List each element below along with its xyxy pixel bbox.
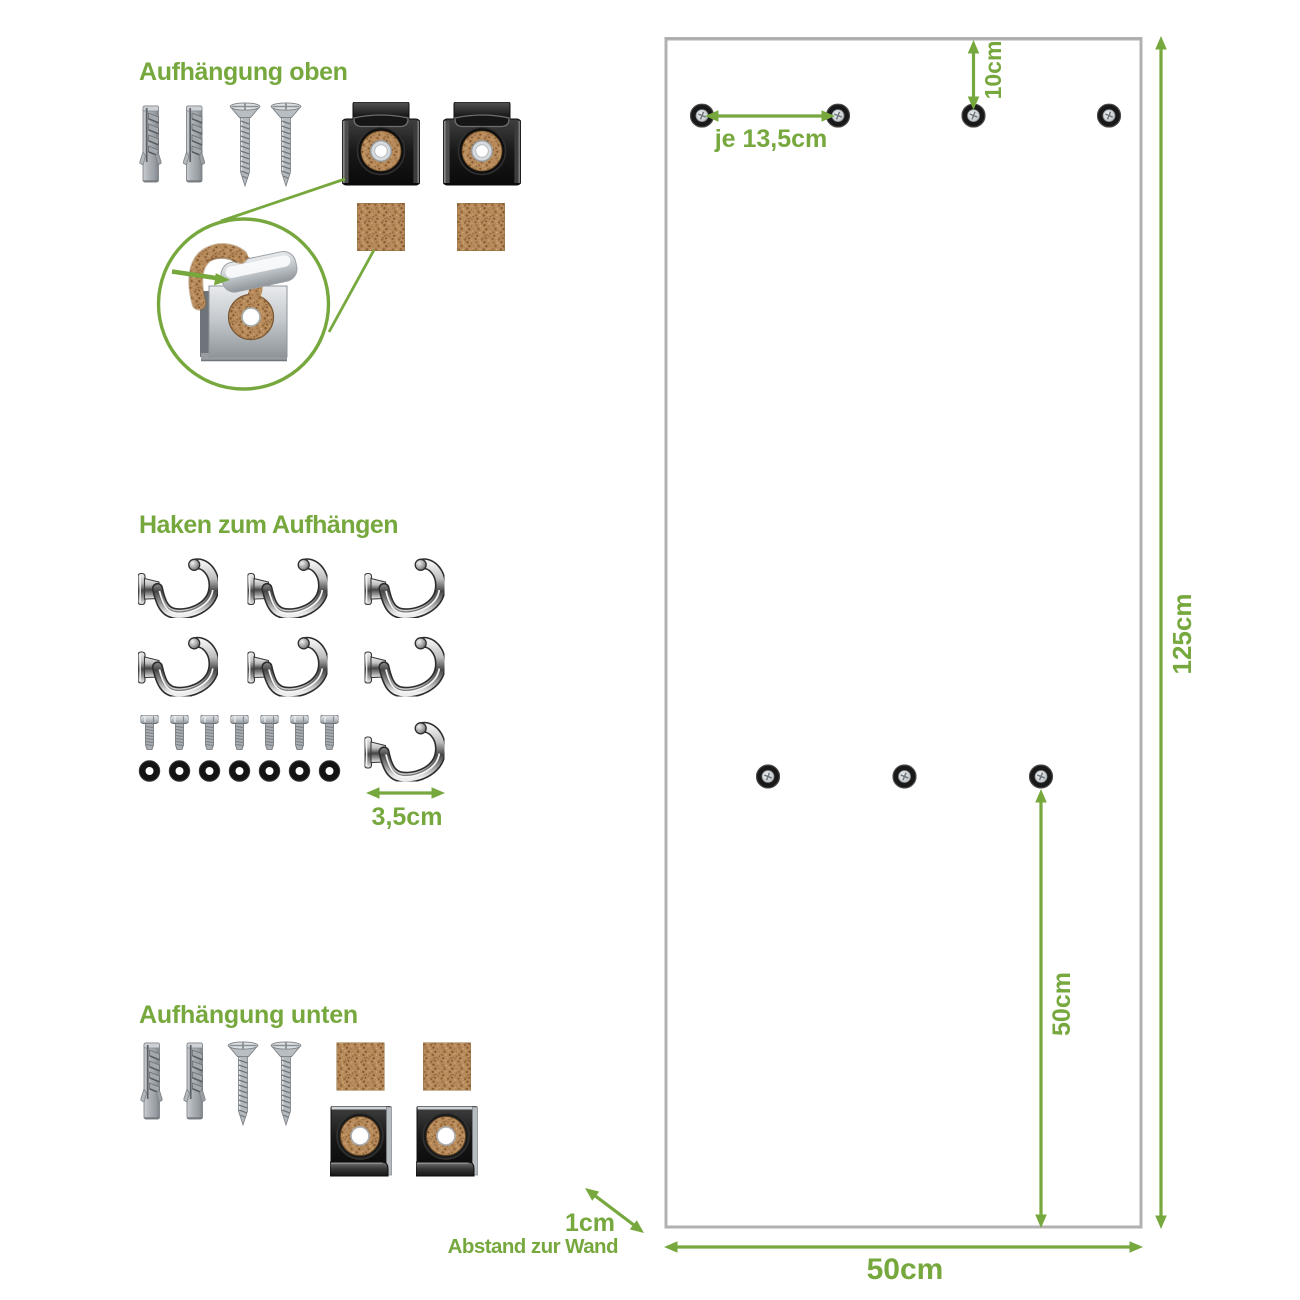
svg-text:3,5cm: 3,5cm: [372, 803, 443, 831]
svg-text:Aufhängung unten: Aufhängung unten: [139, 1001, 358, 1029]
svg-text:je 13,5cm: je 13,5cm: [714, 125, 828, 153]
svg-text:Haken zum Aufhängen: Haken zum Aufhängen: [139, 511, 398, 539]
svg-text:Abstand zur Wand: Abstand zur Wand: [448, 1235, 618, 1258]
svg-text:1cm: 1cm: [565, 1209, 615, 1237]
svg-text:50cm: 50cm: [1048, 972, 1076, 1036]
svg-text:50cm: 50cm: [867, 1253, 944, 1286]
svg-text:10cm: 10cm: [980, 41, 1006, 100]
svg-text:Aufhängung oben: Aufhängung oben: [139, 58, 348, 86]
svg-text:125cm: 125cm: [1167, 594, 1197, 675]
